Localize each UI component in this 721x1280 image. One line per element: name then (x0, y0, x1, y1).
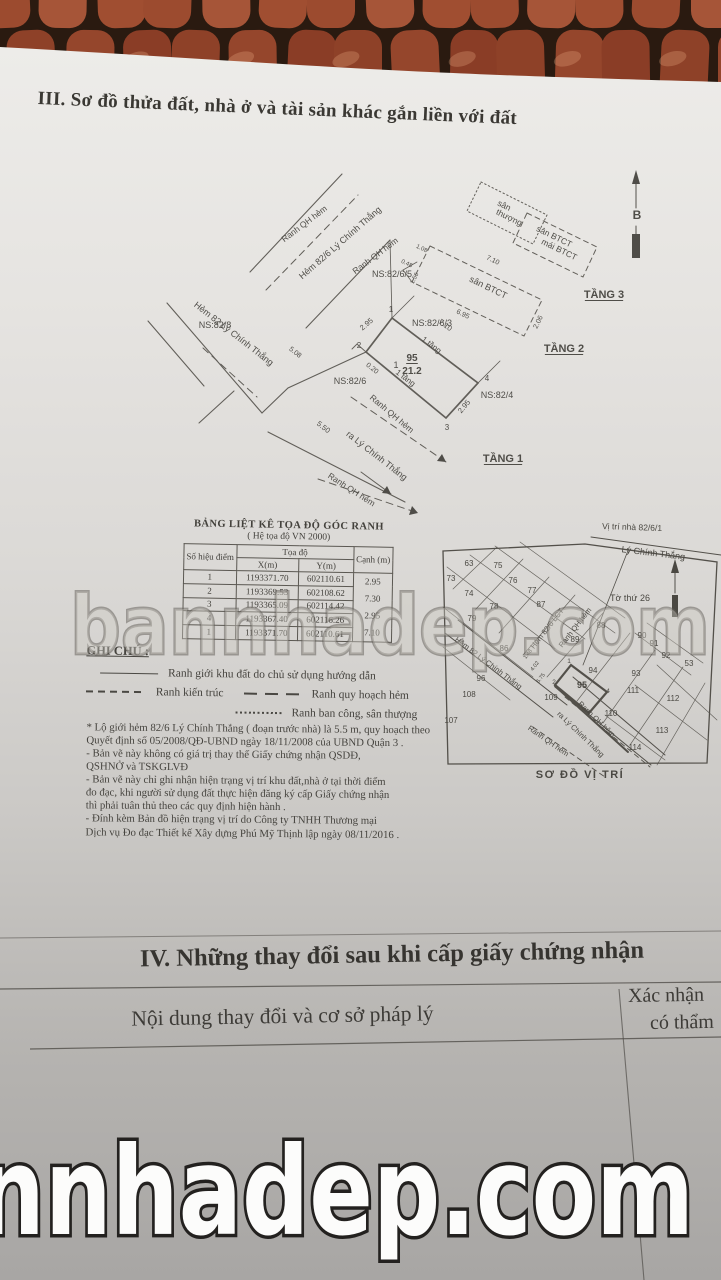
col-header-y: Y(m) (299, 559, 354, 573)
drawing-label: 6.95 (455, 309, 470, 321)
drawing-label: Ranh QH hẻm (279, 203, 328, 244)
legend-dotted-sample (236, 711, 282, 714)
drawing-label: B (633, 208, 642, 222)
drawing-label: TẦNG 3 (584, 288, 624, 301)
drawing-label: 4 (485, 374, 490, 383)
map-parcel-number: 111 (627, 686, 640, 695)
drawing-label: 1 tầng (420, 335, 443, 356)
drawing-label: sân BTCT (468, 274, 509, 301)
drawing-label: 0.20 (364, 362, 379, 376)
drawing-label: NS:82/6/5 (372, 269, 412, 279)
legend-label: Ranh kiến trúc (156, 686, 224, 699)
map-parcel-number: 114 (629, 743, 642, 752)
watermark-bottom: nnhadep.com (0, 1112, 721, 1280)
drawing-label: 7.10 (485, 255, 500, 267)
drawing-label: 3 (445, 423, 450, 432)
drawing-label: 2.06 (533, 315, 545, 330)
section-iv-right-column-header: có thẩm (650, 1010, 721, 1035)
legend-label: Ranh ban công, sân thượng (291, 707, 417, 721)
drawing-label: 5.50 (315, 419, 332, 435)
notes-paragraph: * Lộ giới hẻm 82/6 Lý Chính Thắng ( đoạn… (85, 721, 464, 842)
legend-label: Ranh quy hoạch hẻm (311, 688, 409, 701)
document-photo: III. Sơ đồ thửa đất, nhà ở và tài sản kh… (0, 0, 721, 1280)
notes-text: * Lộ giới hẻm 82/6 Lý Chính Thắng ( đoạn… (86, 721, 431, 840)
drawing-label: NS:82/6 (334, 376, 367, 386)
col-header-x: X(m) (236, 558, 299, 572)
map-parcel-number: 110 (605, 709, 618, 718)
map-parcel-number: 113 (656, 726, 669, 735)
drawing-label: 21.2 (402, 366, 422, 377)
map-street-annotation: Ranh QH hẻm (526, 724, 570, 759)
map-parcel-number: 63 (465, 559, 474, 568)
map-parcel-number: 108 (462, 690, 476, 699)
drawing-label: Hẻm 82 Lý Chính Thắng (192, 300, 275, 368)
legend-long-dash-sample (244, 693, 302, 696)
drawing-label: 1 (393, 360, 398, 370)
map-parcel-number: 75 (494, 561, 503, 570)
watermark-center: bannhadep.com (62, 572, 721, 682)
section-iv-right-column-header: Xác nhận (628, 983, 721, 1008)
north-arrow-icon (632, 170, 640, 184)
drawing-label: TẦNG 1 (483, 452, 523, 465)
map-corner-mark: 4 (606, 688, 610, 695)
legend-row: Ranh kiến trúc Ranh quy hoạch hẻm (86, 685, 466, 702)
drawing-label: 5.08 (287, 346, 302, 360)
drawing-label: 1.08 (415, 244, 429, 255)
map-parcel-number: 109 (544, 693, 558, 702)
legend-small-dash-sample (86, 691, 146, 693)
drawing-label: 1 (389, 305, 394, 314)
col-header-edge: Cạnh (m) (353, 547, 393, 574)
map-street-label: Lý Chính Thắng (621, 544, 686, 562)
plot-survey-drawing: Ranh QH hẻmHẻm 82/6 Lý Chính ThắngRanh Q… (0, 140, 721, 530)
watermark-bottom-text: nnhadep.com (0, 1121, 694, 1263)
watermark-center-text: bannhadep.com (70, 579, 710, 674)
drawing-label: 2 (357, 341, 362, 350)
drawing-label: NS:82/4 (481, 390, 514, 400)
drawing-label: 2.95 (358, 316, 375, 332)
col-header-point: Số hiệu điểm (184, 544, 237, 571)
drawing-labels: Ranh QH hẻmHẻm 82/6 Lý Chính ThắngRanh Q… (192, 198, 641, 509)
drawing-label: 2.95 (456, 398, 472, 415)
drawing-label: TẦNG 2 (544, 342, 584, 355)
drawing-label: ra Lý Chính Thắng (344, 429, 409, 483)
map-parcel-number: 112 (667, 694, 680, 703)
map-pointer-label: Vị trí nhà 82/6/1 (602, 521, 663, 533)
drawing-label: Ranh QH hẻm (326, 470, 377, 508)
drawing-label: 95 (406, 353, 418, 364)
map-caption: SƠ ĐỒ VỊ TRÍ (536, 768, 625, 781)
